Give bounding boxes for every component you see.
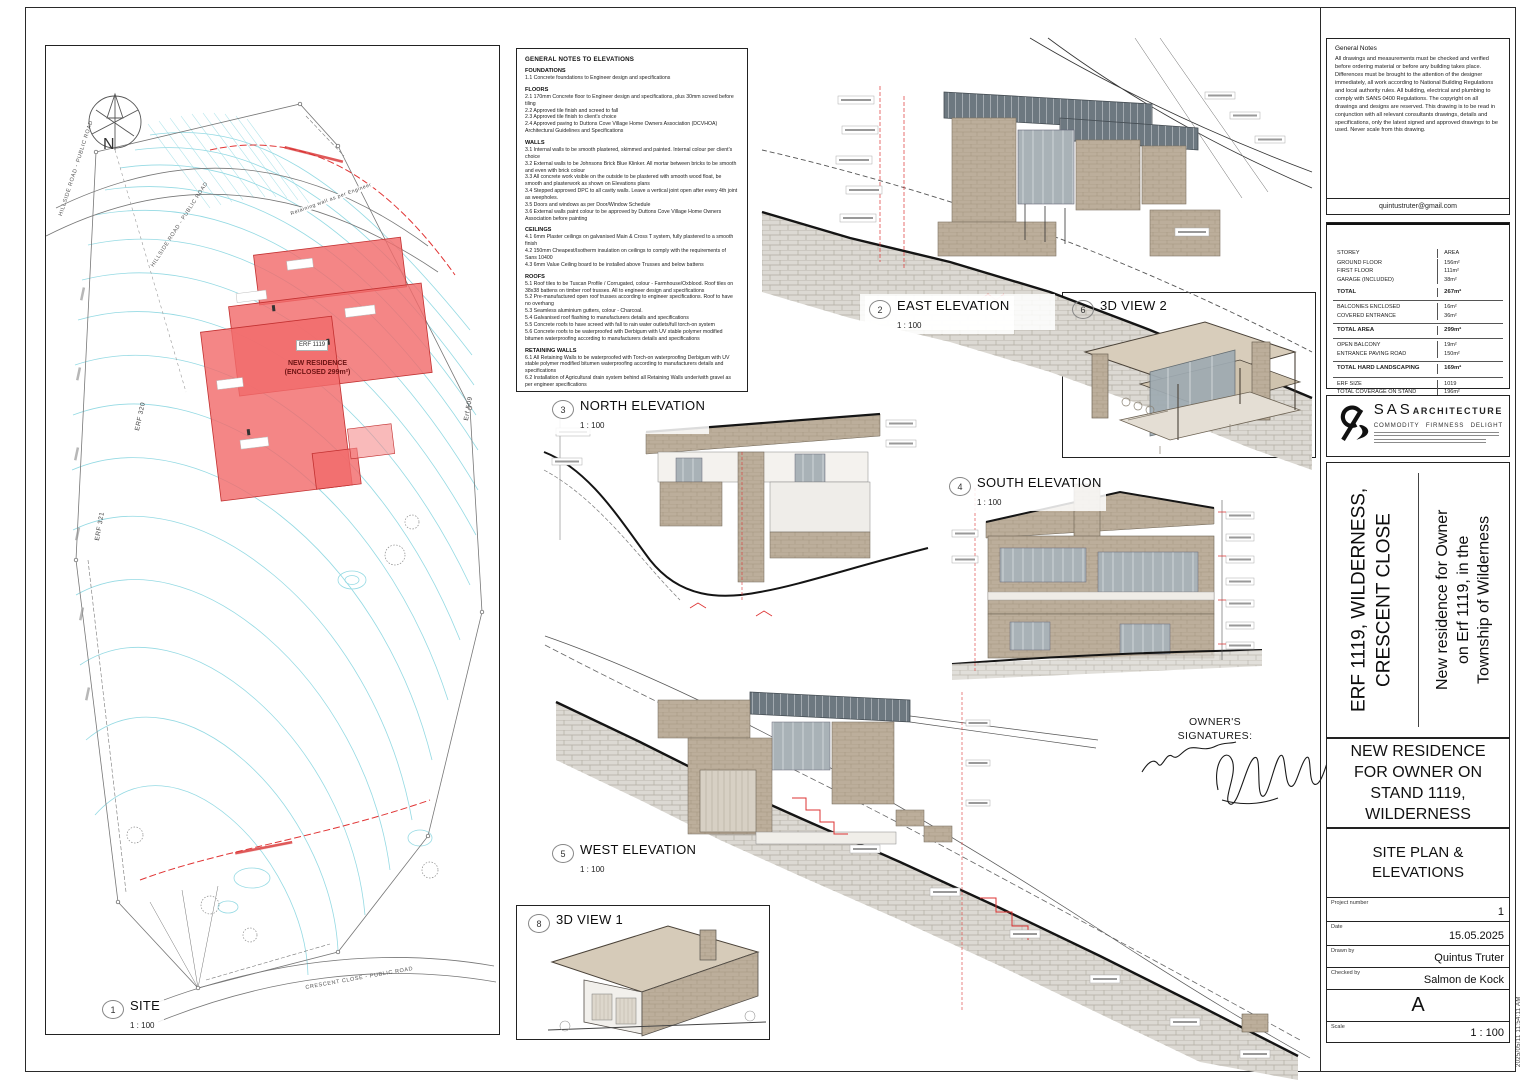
drawing-sheet: 1 SITE 1 : 100 2 EAST ELEVATION 1 : 100 … <box>0 0 1527 1080</box>
area-row-label: OPEN BALCONY <box>1333 341 1437 350</box>
area-row-label: STOREY <box>1333 249 1437 258</box>
view-scale: 1 : 100 <box>977 498 1001 507</box>
view-number: 5 <box>552 844 574 863</box>
notes-section-heading: WALLS <box>525 140 739 146</box>
area-row-label: TOTAL AREA <box>1333 326 1437 335</box>
sheet-title-upper-box: NEW RESIDENCE FOR OWNER ON STAND 1119, W… <box>1326 738 1510 828</box>
view-number: 3 <box>552 400 574 419</box>
project-title-box: ERF 1119, WILDERNESS, CRESCENT CLOSE New… <box>1326 462 1510 738</box>
scale-label: Scale <box>1331 1024 1345 1030</box>
sas-logo-icon <box>1333 401 1370 447</box>
area-row-label: BALCONIES ENCLOSED <box>1333 303 1437 312</box>
logo-architecture: ARCHITECTURE <box>1413 406 1503 416</box>
view-title: SITE <box>130 998 160 1013</box>
area-schedule-box: STOREY AREA GROUND FLOOR 156m² FIRST FLO… <box>1326 222 1510 389</box>
logo-fine-print <box>1374 432 1499 437</box>
south-elevation-drawing <box>952 484 1262 680</box>
view-label-site: 1 SITE 1 : 100 <box>98 996 164 1034</box>
area-row-value: 19m² <box>1437 341 1503 350</box>
notes-section-heading: RETAINING WALLS <box>525 348 739 354</box>
notes-section-lines: 5.1 Roof tiles to be Tuscan Profile / Co… <box>525 281 739 343</box>
site-plan-drawing <box>46 94 496 1022</box>
view-scale: 1 : 100 <box>897 321 921 330</box>
area-row-label: TOTAL HARD LANDSCAPING <box>1333 364 1437 373</box>
view-scale: 1 : 100 <box>580 421 604 430</box>
area-table-row: ENTRANCE PAVING ROAD 150m² <box>1333 350 1503 359</box>
sheet-title-lower-box: SITE PLAN & ELEVATIONS <box>1326 828 1510 898</box>
north-elevation-drawing <box>544 414 928 616</box>
area-row-label: ENTRANCE PAVING ROAD <box>1333 350 1437 359</box>
area-row-value: 16m² <box>1437 303 1503 312</box>
general-notes-title: General Notes <box>1335 45 1501 52</box>
date-row: Date 15.05.2025 <box>1326 922 1510 946</box>
area-table: STOREY AREA GROUND FLOOR 156m² FIRST FLO… <box>1327 223 1509 418</box>
project-number-value: 1 <box>1498 906 1504 918</box>
notes-section-lines: 4.1 6mm Plaster ceilings on galvanised M… <box>525 234 739 268</box>
erf-title-vertical: ERF 1119, WILDERNESS, CRESCENT CLOSE <box>1327 463 1418 737</box>
logo-text: SASARCHITECTURE COMMODITY FIRMNESS DELIG… <box>1374 401 1503 444</box>
view-title: SOUTH ELEVATION <box>977 475 1102 490</box>
area-row-value: 156m² <box>1437 259 1503 268</box>
notes-section-heading: FOUNDATIONS <box>525 68 739 74</box>
revision-value: A <box>1411 994 1424 1017</box>
view-label-north: 3 NORTH ELEVATION 1 : 100 <box>548 396 709 434</box>
view-label-3d2: 6 3D VIEW 2 <box>1068 296 1171 320</box>
general-notes-box: General Notes All drawings and measureme… <box>1326 38 1510 215</box>
view-title: NORTH ELEVATION <box>580 398 705 413</box>
project-subtitle-vertical: New residence for Owner on Erf 1119, in … <box>1419 463 1510 737</box>
area-table-row: GARAGE (INCLUDED) 38m² <box>1333 276 1503 285</box>
area-row-value: AREA <box>1437 249 1503 258</box>
area-table-row: TOTAL HARD LANDSCAPING 169m² <box>1333 361 1503 373</box>
email-address: quintustruter@gmail.com <box>1327 198 1509 214</box>
view-label-3d1: 8 3D VIEW 1 <box>524 910 627 934</box>
checked-by-row: Checked by Salmon de Kock <box>1326 968 1510 990</box>
area-row-label: TOTAL <box>1333 288 1437 297</box>
scale-value: 1 : 100 <box>1470 1027 1504 1039</box>
area-row-value: 267m² <box>1437 288 1503 297</box>
architect-logo-box: SASARCHITECTURE COMMODITY FIRMNESS DELIG… <box>1326 395 1510 457</box>
drawings-layer <box>0 0 1527 1080</box>
new-residence-label: NEW RESIDENCE (ENCLOSED 299m²) <box>265 360 370 378</box>
date-label: Date <box>1331 924 1343 930</box>
area-row-label: COVERED ENTRANCE <box>1333 312 1437 321</box>
area-row-label: GROUND FLOOR <box>1333 259 1437 268</box>
area-table-row: BALCONIES ENCLOSED 16m² <box>1333 300 1503 312</box>
area-table-row: TOTAL AREA 299m² <box>1333 323 1503 335</box>
view-number: 2 <box>869 300 891 319</box>
view-scale: 1 : 100 <box>580 865 604 874</box>
area-row-value: 38m² <box>1437 276 1503 285</box>
checked-by-label: Checked by <box>1331 970 1360 976</box>
date-value: 15.05.2025 <box>1449 930 1504 942</box>
area-table-row: GROUND FLOOR 156m² <box>1333 259 1503 268</box>
view-number: 1 <box>102 1000 124 1019</box>
notes-section-lines: 1.1 Concrete foundations to Engineer des… <box>525 75 739 82</box>
view-number: 4 <box>949 477 971 496</box>
general-notes-elevations: GENERAL NOTES TO ELEVATIONS FOUNDATIONS … <box>516 48 748 392</box>
area-row-value: 150m² <box>1437 350 1503 359</box>
logo-tag-commodity: COMMODITY <box>1374 422 1420 429</box>
view-title: 3D VIEW 2 <box>1100 298 1167 313</box>
project-number-row: Project number 1 <box>1326 898 1510 922</box>
owner-signatures-drawing <box>1142 742 1328 804</box>
area-row-label: GARAGE (INCLUDED) <box>1333 276 1437 285</box>
notes-section-lines: 2.1 170mm Concrete floor to Engineer des… <box>525 94 739 135</box>
view-title: EAST ELEVATION <box>897 298 1010 313</box>
view-title: 3D VIEW 1 <box>556 912 623 927</box>
drawn-by-row: Drawn by Quintus Truter <box>1326 946 1510 968</box>
area-table-row: OPEN BALCONY 19m² <box>1333 338 1503 350</box>
notes-section: CEILINGS 4.1 6mm Plaster ceilings on gal… <box>525 227 739 268</box>
area-table-row: ERF SIZE 1019 <box>1333 377 1503 389</box>
view-title: WEST ELEVATION <box>580 842 696 857</box>
view-label-east: 2 EAST ELEVATION 1 : 100 <box>865 296 1014 334</box>
notes-section: FOUNDATIONS 1.1 Concrete foundations to … <box>525 68 739 82</box>
logo-tag-delight: DELIGHT <box>1471 422 1503 429</box>
erf-1119-label: ERF 1119 <box>296 340 328 351</box>
area-row-value: 299m² <box>1437 326 1503 335</box>
drawn-by-value: Quintus Truter <box>1434 952 1504 964</box>
view-scale: 1 : 100 <box>130 1021 154 1030</box>
notes-section-heading: CEILINGS <box>525 227 739 233</box>
scale-row: Scale 1 : 100 <box>1326 1022 1510 1043</box>
area-row-value: 36m² <box>1437 312 1503 321</box>
plot-timestamp: 2025/05/11 11:54:11 AM <box>1516 975 1522 1067</box>
logo-fine-print <box>1374 439 1486 444</box>
view-label-west: 5 WEST ELEVATION 1 : 100 <box>548 840 700 878</box>
area-row-value: 111m² <box>1437 267 1503 276</box>
notes-section: ROOFS 5.1 Roof tiles to be Tuscan Profil… <box>525 274 739 343</box>
notes-section-lines: 3.1 Internal walls to be smooth plastere… <box>525 147 739 222</box>
notes-body: FOUNDATIONS 1.1 Concrete foundations to … <box>525 68 739 392</box>
area-table-row: COVERED ENTRANCE 36m² <box>1333 312 1503 321</box>
area-row-value: 169m² <box>1437 364 1503 373</box>
area-row-label: FIRST FLOOR <box>1333 267 1437 276</box>
logo-sas: SAS <box>1374 401 1413 418</box>
logo-tag-firmness: FIRMNESS <box>1426 422 1464 429</box>
revision-box: A <box>1326 990 1510 1022</box>
drawn-by-label: Drawn by <box>1331 948 1354 954</box>
area-table-row: FIRST FLOOR 111m² <box>1333 267 1503 276</box>
area-row-value: 1019 <box>1437 380 1503 389</box>
owners-signatures-heading: OWNER'S SIGNATURES: <box>1155 716 1275 743</box>
checked-by-value: Salmon de Kock <box>1424 974 1504 986</box>
view3d-1-drawing <box>548 926 766 1036</box>
project-number-label: Project number <box>1331 900 1368 906</box>
view-number: 6 <box>1072 300 1094 319</box>
notes-section: RETAINING WALLS 6.1 All Retaining Walls … <box>525 348 739 389</box>
area-row-label: ERF SIZE <box>1333 380 1437 389</box>
notes-section-heading: ROOFS <box>525 274 739 280</box>
notes-section-lines: 6.1 All Retaining Walls to be waterproof… <box>525 355 739 389</box>
general-notes-text: All drawings and measurements must be ch… <box>1335 56 1501 135</box>
notes-title: GENERAL NOTES TO ELEVATIONS <box>525 56 739 63</box>
view-label-south: 4 SOUTH ELEVATION 1 : 100 <box>945 473 1106 511</box>
view-number: 8 <box>528 914 550 933</box>
notes-section: WALLS 3.1 Internal walls to be smooth pl… <box>525 140 739 222</box>
north-letter: N <box>103 136 115 154</box>
notes-section: FLOORS 2.1 170mm Concrete floor to Engin… <box>525 87 739 135</box>
area-table-row: TOTAL 267m² <box>1333 288 1503 297</box>
notes-section-heading: FLOORS <box>525 87 739 93</box>
area-table-row: STOREY AREA <box>1333 249 1503 258</box>
